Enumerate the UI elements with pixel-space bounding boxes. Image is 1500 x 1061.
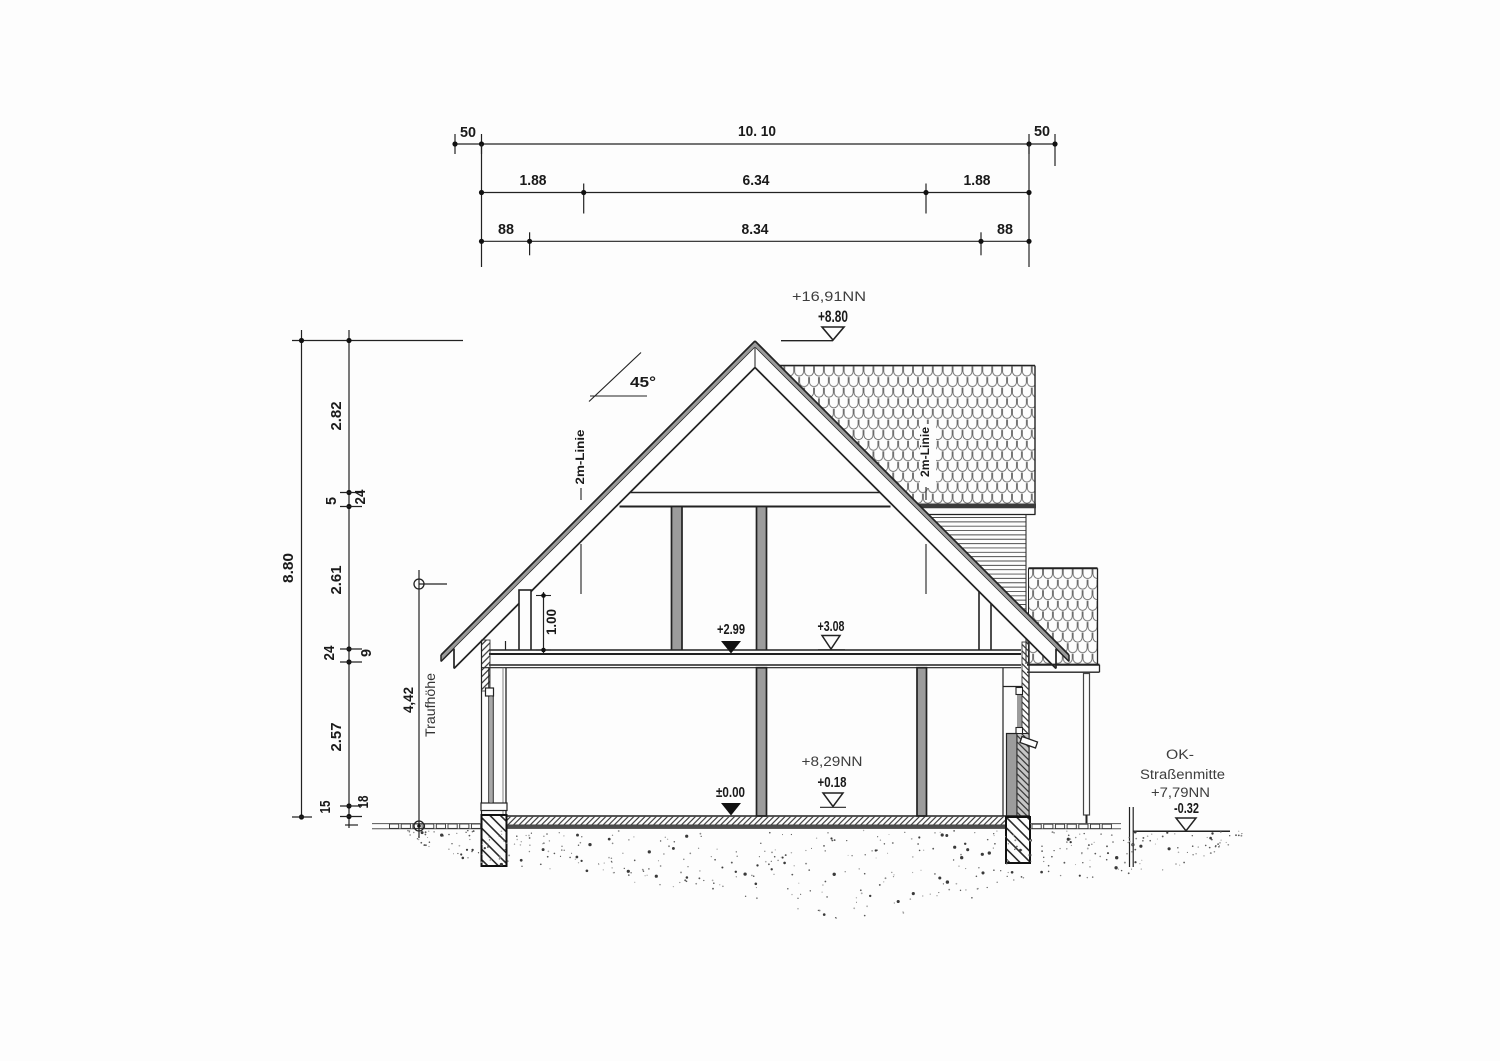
svg-text:Traufhöhe: Traufhöhe xyxy=(423,673,438,737)
svg-text:2m-Linie: 2m-Linie xyxy=(918,427,932,477)
svg-text:4,42: 4,42 xyxy=(401,687,416,713)
svg-text:+8.80: +8.80 xyxy=(818,307,848,326)
svg-text:88: 88 xyxy=(498,221,514,238)
svg-text:OK-: OK- xyxy=(1166,747,1194,762)
svg-text:24: 24 xyxy=(322,646,338,661)
svg-text:-0.32: -0.32 xyxy=(1174,801,1199,817)
svg-text:Straßenmitte: Straßenmitte xyxy=(1140,767,1225,782)
svg-text:6.34: 6.34 xyxy=(743,172,771,189)
svg-text:1.88: 1.88 xyxy=(520,172,547,189)
svg-text:8.34: 8.34 xyxy=(742,221,770,238)
svg-text:+16,91NN: +16,91NN xyxy=(792,289,866,304)
svg-text:8.80: 8.80 xyxy=(280,553,297,583)
svg-text:+0.18: +0.18 xyxy=(818,775,847,791)
svg-text:15: 15 xyxy=(318,801,334,814)
svg-text:50: 50 xyxy=(1034,123,1050,140)
svg-text:+8,29NN: +8,29NN xyxy=(802,754,863,769)
svg-text:5: 5 xyxy=(324,497,340,505)
svg-text:9: 9 xyxy=(359,649,375,657)
svg-text:+7,79NN: +7,79NN xyxy=(1151,785,1210,800)
svg-text:2.57: 2.57 xyxy=(329,723,345,752)
svg-text:18: 18 xyxy=(356,796,372,809)
svg-text:1.88: 1.88 xyxy=(964,172,991,189)
svg-text:+3.08: +3.08 xyxy=(818,619,845,635)
svg-text:88: 88 xyxy=(997,221,1013,238)
svg-text:1.00: 1.00 xyxy=(544,609,559,635)
svg-text:2.61: 2.61 xyxy=(329,566,345,595)
svg-text:±0.00: ±0.00 xyxy=(716,785,745,801)
svg-text:50: 50 xyxy=(460,124,476,141)
svg-text:2m-Linie: 2m-Linie xyxy=(573,429,587,484)
svg-text:24: 24 xyxy=(353,490,369,505)
svg-text:10. 10: 10. 10 xyxy=(738,123,776,140)
svg-text:+2.99: +2.99 xyxy=(717,622,745,638)
svg-text:2.82: 2.82 xyxy=(329,402,345,431)
svg-text:45°: 45° xyxy=(630,375,656,391)
